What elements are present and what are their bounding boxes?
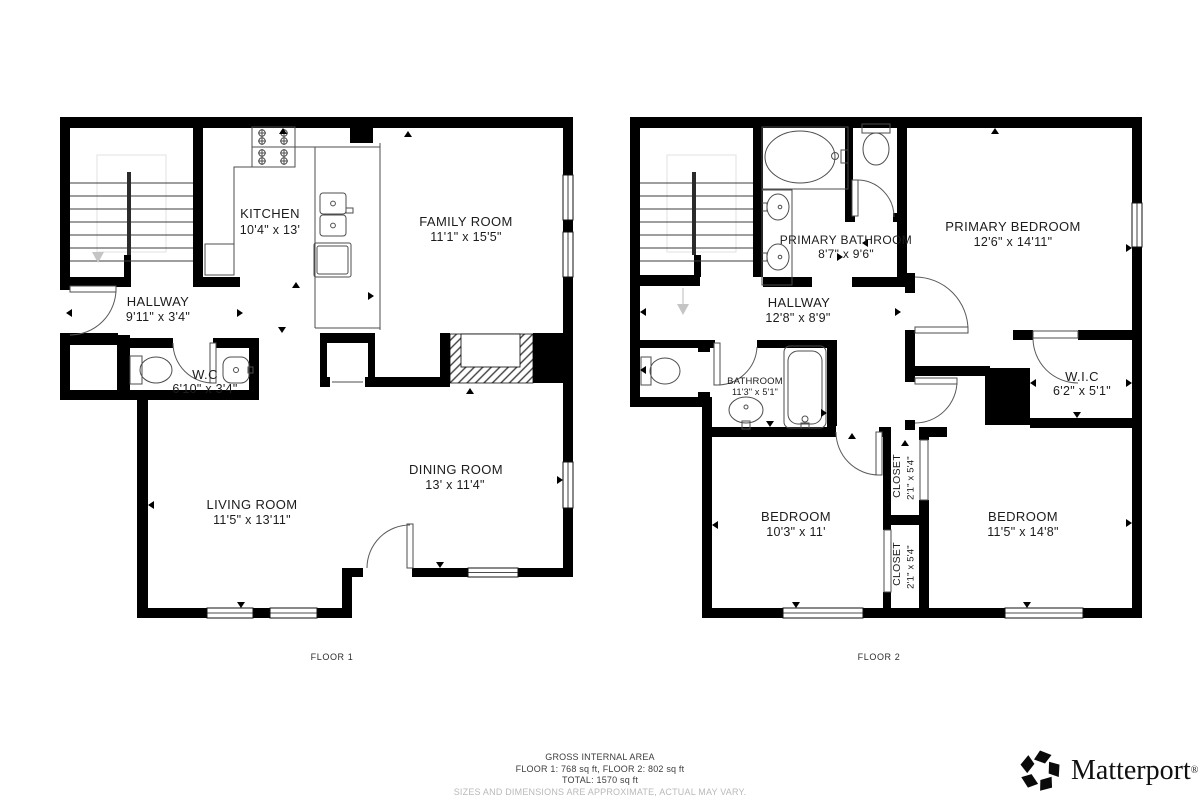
bathtub-icon [765, 131, 835, 183]
bedroom-left-door-arc [836, 432, 879, 475]
dining-door-opening [363, 567, 412, 578]
floor2-stairs [640, 155, 753, 315]
dining-room-label: DINING ROOM [409, 462, 503, 477]
primary-bedroom-dims: 12'6" x 14'11" [974, 235, 1053, 249]
front-door-leaf [70, 286, 116, 292]
fireplace [450, 334, 533, 383]
bedroom-left-dims: 10'3" x 11' [766, 525, 826, 539]
kitchen-sink-icon [320, 193, 346, 214]
bedroom-right-label: BEDROOM [988, 509, 1058, 524]
wc-dims: 6'10" x 3'4" [172, 382, 237, 396]
matterport-logo: Matterport® [1018, 748, 1198, 794]
floor2-caption: FLOOR 2 [858, 652, 901, 662]
dining-door-arc [367, 525, 410, 568]
matterport-wordmark: Matterport [1071, 748, 1191, 794]
closet-top-door-panel [920, 440, 928, 500]
toilet-room-door-leaf [852, 180, 858, 216]
front-door-arc [70, 289, 116, 335]
matterport-pinwheel-icon [1018, 749, 1062, 793]
primary-bedroom-label: PRIMARY BEDROOM [945, 219, 1081, 234]
wic-dims: 6'2" x 5'1" [1053, 384, 1111, 398]
bathroom-door-leaf [714, 343, 720, 385]
wic-label: W.I.C [1065, 369, 1099, 384]
dining-door-leaf [407, 524, 413, 568]
bedroom-right-dims: 11'5" x 14'8" [987, 525, 1059, 539]
primary-bathroom-label: PRIMARY BATHROOM [780, 233, 912, 247]
dining-room-dims: 13' x 11'4" [425, 478, 485, 492]
floor1-plan: KITCHEN 10'4" x 13' FAMILY ROOM 11'1" x … [55, 110, 580, 670]
bathroom-label: BATHROOM [727, 376, 783, 387]
floor2-plan: PRIMARY BATHROOM 8'7" x 9'6" PRIMARY BED… [625, 110, 1150, 670]
bedroom-left-door-leaf [876, 432, 882, 475]
living-room-dims: 11'5" x 13'11" [213, 513, 291, 527]
stair-rail [127, 172, 131, 255]
registered-mark: ® [1191, 761, 1199, 781]
corner-counter [205, 244, 234, 275]
primary-bedroom-door-arc [915, 277, 968, 330]
primary-bedroom-door-leaf [915, 327, 968, 333]
floorplan-canvas: KITCHEN 10'4" x 13' FAMILY ROOM 11'1" x … [0, 0, 1200, 800]
wc-label: W.C [192, 367, 218, 382]
corridor-door-arc [915, 381, 957, 423]
living-room-label: LIVING ROOM [206, 497, 297, 512]
hallway-label: HALLWAY [127, 294, 190, 309]
wc-door-opening [173, 337, 213, 349]
bedroom-left-label: BEDROOM [761, 509, 831, 524]
stairs-down-arrow-icon [677, 304, 689, 315]
closet-top-dims: 2'1" x 5'4" [906, 456, 917, 500]
wc-sink-icon [223, 357, 249, 383]
toilet-room-door-arc [857, 180, 894, 217]
hallway-dims: 12'8" x 8'9" [765, 311, 830, 325]
family-room-dims: 11'1" x 15'5" [430, 230, 502, 244]
closet-bottom-label: CLOSET [891, 542, 903, 586]
corridor-door-leaf [915, 378, 957, 384]
closet-bottom-dims: 2'1" x 5'4" [906, 545, 917, 589]
sink-icon [729, 397, 763, 423]
bathroom-dims: 11'3" x 5'1" [732, 387, 778, 397]
kitchen-dims: 10'4" x 13' [240, 223, 300, 237]
floor1-caption: FLOOR 1 [311, 652, 354, 662]
kitchen-label: KITCHEN [240, 206, 300, 221]
stair-rail [692, 172, 696, 255]
closet-top-label: CLOSET [891, 454, 903, 498]
fridge-icon [314, 243, 351, 277]
primary-bathroom-dims: 8'7" x 9'6" [818, 247, 874, 261]
floor1-windows [207, 175, 573, 618]
hallway-label: HALLWAY [768, 295, 831, 310]
floor1-stairs [70, 155, 193, 263]
family-room-label: FAMILY ROOM [419, 214, 513, 229]
stove-icon [252, 127, 295, 147]
wic-door-leaf [1033, 331, 1078, 338]
hallway-dims: 9'11" x 3'4" [126, 310, 190, 324]
